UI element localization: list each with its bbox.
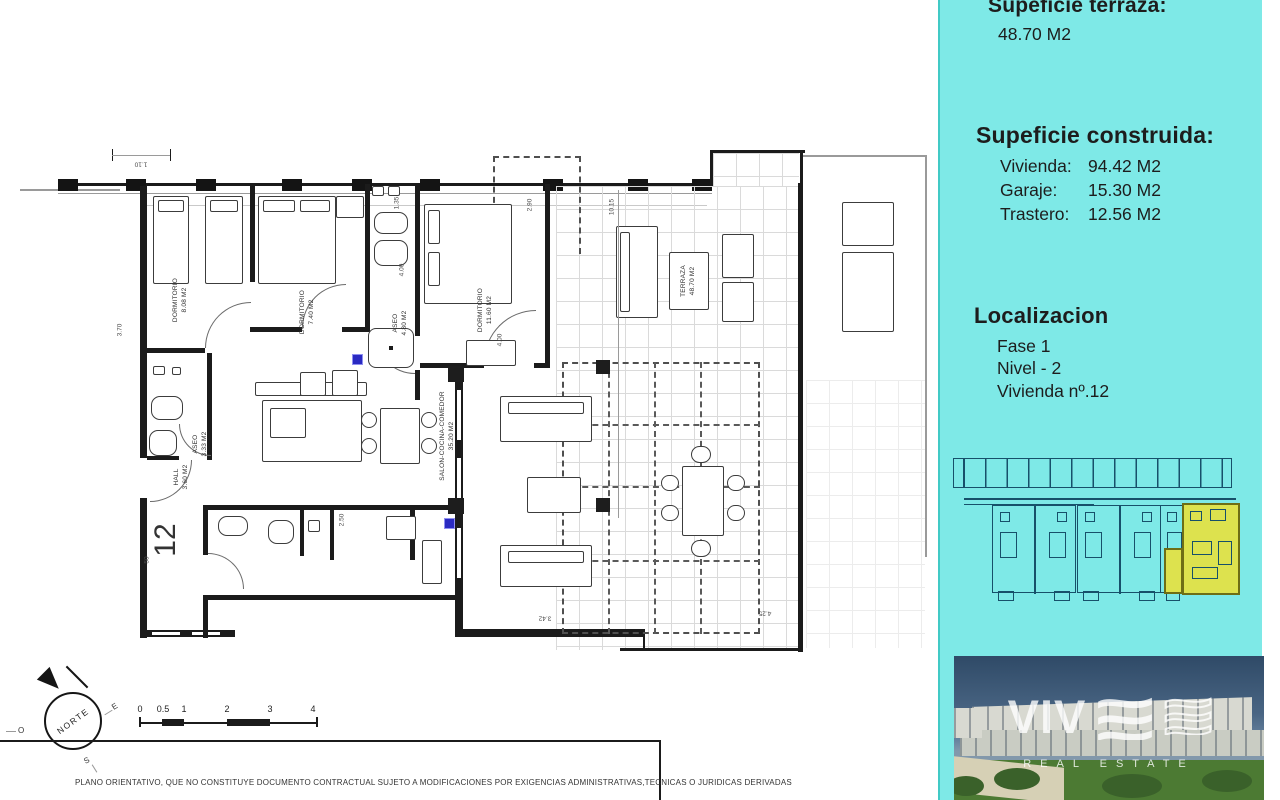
dim-label: 1.35 <box>394 197 401 210</box>
shelf <box>172 367 181 375</box>
minimap-room <box>1134 532 1151 558</box>
minimap-room <box>1192 541 1212 555</box>
terrace-tiles <box>713 153 799 186</box>
room-name: ASEO <box>192 435 201 454</box>
unit-number: 12 <box>149 523 183 556</box>
pillow <box>158 200 184 212</box>
wall <box>798 183 803 652</box>
chair <box>421 438 437 454</box>
kitchen-appliance <box>332 370 358 396</box>
dim-tick <box>170 149 171 161</box>
sofa-back <box>508 402 584 414</box>
minimap-unit-foot <box>998 591 1014 601</box>
floor-plan: 1.10 <box>0 0 938 800</box>
compass-tick <box>92 764 98 772</box>
wall <box>342 327 370 332</box>
washbasin-symbol <box>218 516 248 536</box>
pillar <box>282 179 302 191</box>
scale-tick-label: 3 <box>267 704 272 714</box>
location-item: Vivienda nº.12 <box>997 381 1109 402</box>
pergola-post <box>596 360 610 374</box>
minimap-unit-divider <box>1119 506 1121 594</box>
pillow <box>300 200 330 212</box>
north-arrow-icon <box>37 667 65 695</box>
wall <box>620 648 800 651</box>
pillar <box>196 179 216 191</box>
service-marker <box>444 518 455 529</box>
chair <box>361 438 377 454</box>
room-label-dormitorio2: DORMITORIO 7.40 M2 <box>299 290 317 334</box>
built-row: Garaje:15.30 M2 <box>1000 180 1161 201</box>
wall <box>250 327 302 332</box>
kitchen-appliance <box>386 516 416 540</box>
vive-waves-icon <box>1164 693 1212 735</box>
coffee-table <box>527 477 581 513</box>
photo-bush <box>1202 770 1252 792</box>
built-row: Vivienda:94.42 M2 <box>1000 156 1161 177</box>
door-arc <box>208 553 244 589</box>
room-area: 3.60 M2 <box>182 465 191 490</box>
wall <box>534 363 550 368</box>
dim-label: 3.70 <box>117 324 124 337</box>
room-name: ASEO <box>392 314 401 333</box>
washbasin-symbol <box>149 430 177 456</box>
room-area: 48.70 M2 <box>689 267 698 296</box>
pergola-beam <box>654 362 656 634</box>
toilet-symbol <box>151 396 183 420</box>
north-arrow-shaft <box>66 666 89 689</box>
shelf <box>372 186 384 196</box>
window-slit <box>152 632 180 635</box>
dim-label: 4.00 <box>497 334 504 347</box>
wall <box>330 510 334 560</box>
terrace-surface-value: 48.70 M2 <box>998 24 1071 45</box>
minimap-room <box>1192 567 1218 579</box>
minimap-storage-block <box>953 458 964 488</box>
toilet-symbol <box>268 520 294 544</box>
vive-logo: VIV <box>964 692 1256 740</box>
room-label-dormitorio3: DORMITORIO 11.60 M2 <box>477 288 495 332</box>
chair <box>727 475 745 491</box>
room-label-aseo1: ASEO 4.80 M2 <box>392 311 410 336</box>
neighbor-wall <box>803 155 927 157</box>
chair <box>727 505 745 521</box>
kitchen-sink <box>270 408 306 438</box>
neighbor-tiles <box>806 380 925 648</box>
room-label-aseo2: ASEO 3.33 M2 <box>192 432 210 457</box>
wall <box>300 510 304 556</box>
built-row-value: 15.30 M2 <box>1088 180 1161 200</box>
scale-tick-label: 0 <box>137 704 142 714</box>
neighbor-wall <box>925 155 927 557</box>
built-row-label: Garaje: <box>1000 180 1088 201</box>
chair <box>691 446 711 463</box>
glass-panel <box>457 390 461 440</box>
minimap-room <box>1057 512 1067 522</box>
chair <box>661 505 679 521</box>
built-row-value: 12.56 M2 <box>1088 204 1161 224</box>
scale-tick-label: 0.5 <box>157 704 170 714</box>
minimap-room <box>1049 532 1066 558</box>
page: 1.10 <box>0 0 1280 800</box>
pillar <box>58 179 78 191</box>
site-plan-minimap <box>952 450 1252 635</box>
compass-south-label: S <box>82 755 91 765</box>
room-area: 4.80 M2 <box>401 311 410 336</box>
neighbor-planter <box>842 202 894 246</box>
wall <box>140 186 147 458</box>
location-heading: Localizacion <box>974 303 1108 329</box>
neighbor-planter <box>842 252 894 332</box>
toilet-symbol <box>374 240 408 266</box>
compass-tick <box>6 731 16 732</box>
shower-drain <box>389 346 393 350</box>
wall <box>415 184 420 336</box>
minimap-unit-foot <box>1139 591 1155 601</box>
door-arc <box>205 302 251 348</box>
wall <box>365 184 370 332</box>
service-marker <box>352 354 363 365</box>
scale-bar-tick <box>316 717 318 727</box>
building-photo: VIV REAL ESTATE <box>954 656 1264 800</box>
minimap-unit-foot <box>1054 591 1070 601</box>
armchair <box>722 234 754 278</box>
pergola-post <box>448 366 464 382</box>
location-item: Fase 1 <box>997 336 1051 357</box>
titleblock-line <box>0 740 660 742</box>
minimap-unit <box>1077 505 1161 593</box>
armchair <box>722 282 754 322</box>
vive-e-icon <box>1096 692 1154 740</box>
dim-line <box>112 155 170 156</box>
room-area: 7.40 M2 <box>308 300 317 325</box>
room-name: DORMITORIO <box>299 290 308 334</box>
minimap-garage-cells <box>965 459 1231 487</box>
dim-label: 2.90 <box>527 199 534 212</box>
minimap-room <box>1085 532 1102 558</box>
disclaimer-text: PLANO ORIENTATIVO, QUE NO CONSTITUYE DOC… <box>75 778 792 787</box>
titleblock-line <box>659 740 661 800</box>
wall <box>140 498 147 638</box>
bidet-symbol <box>374 212 408 234</box>
built-surface-heading: Supeficie construida: <box>976 122 1214 149</box>
vive-brand-letters: VIV <box>1008 693 1087 740</box>
chair <box>361 412 377 428</box>
location-item: Nivel - 2 <box>997 358 1061 379</box>
room-label-hall: HALL 3.60 M2 <box>173 465 191 490</box>
pergola-post <box>596 498 610 512</box>
room-label-salon: SALON-COCINA-COMEDOR 35.20 M2 <box>439 391 457 481</box>
minimap-unit <box>992 505 1076 593</box>
built-row-label: Vivienda: <box>1000 156 1088 177</box>
dining-table <box>380 408 420 464</box>
minimap-room <box>1210 509 1226 521</box>
scale-bar-block <box>227 719 270 726</box>
room-name: HALL <box>173 468 182 485</box>
bench <box>466 340 516 366</box>
shelf <box>308 520 320 532</box>
pillow <box>428 252 440 286</box>
dim-label: 3.42 <box>539 615 552 622</box>
wall <box>203 510 208 555</box>
minimap-highlighted-unit <box>1182 503 1240 595</box>
pillow <box>263 200 295 212</box>
glass-panel <box>457 528 461 578</box>
room-area: 8.08 M2 <box>181 288 190 313</box>
dim-label: 10.15 <box>609 199 616 215</box>
minimap-room <box>1000 512 1010 522</box>
minimap-garage-strip <box>964 458 1232 488</box>
wall <box>203 595 208 638</box>
vive-tagline: REAL ESTATE <box>954 758 1264 770</box>
minimap-unit-divider <box>1034 506 1036 594</box>
shelf <box>153 366 165 375</box>
minimap-room <box>1167 512 1177 522</box>
minimap-room <box>1085 512 1095 522</box>
compass-tick <box>104 710 112 716</box>
pergola-post <box>448 498 464 514</box>
scale-tick-label: 4 <box>310 704 315 714</box>
shelf <box>388 186 400 196</box>
scale-tick-label: 1 <box>181 704 186 714</box>
dim-label: 1.10 <box>135 161 148 168</box>
room-name: DORMITORIO <box>477 288 486 332</box>
room-name: DORMITORIO <box>172 278 181 322</box>
counter <box>422 540 442 584</box>
scale-bar-tick <box>139 717 141 727</box>
sofa-back <box>620 232 630 312</box>
outdoor-table <box>682 466 724 536</box>
built-row: Trastero:12.56 M2 <box>1000 204 1161 225</box>
minimap-room <box>1142 512 1152 522</box>
photo-bush <box>994 768 1040 790</box>
photo-bush <box>1102 774 1162 798</box>
built-row-label: Trastero: <box>1000 204 1088 225</box>
chair <box>661 475 679 491</box>
pillow <box>210 200 238 212</box>
info-panel: Supeficie terraza: 48.70 M2 Supeficie co… <box>938 0 1262 800</box>
wall <box>415 370 420 400</box>
closet <box>336 196 364 218</box>
pillow <box>428 210 440 244</box>
chair <box>691 540 711 557</box>
minimap-room <box>1000 532 1017 558</box>
dim-label: 50 <box>144 556 151 563</box>
room-name: SALON-COCINA-COMEDOR <box>439 391 448 481</box>
room-label-dormitorio1: DORMITORIO 8.08 M2 <box>172 278 190 322</box>
room-area: 3.33 M2 <box>201 432 210 457</box>
wall <box>203 595 458 600</box>
compass-west-label: O <box>18 726 24 735</box>
minimap-unit-foot <box>1083 591 1099 601</box>
room-area: 11.60 M2 <box>486 296 495 324</box>
room-label-terraza: TERRAZA 48.70 M2 <box>680 265 698 297</box>
sofa-back <box>508 551 584 563</box>
room-name: TERRAZA <box>680 265 689 297</box>
wall <box>250 184 255 282</box>
minimap-room <box>1218 541 1232 565</box>
dim-line <box>618 190 619 518</box>
scale-tick-label: 2 <box>224 704 229 714</box>
minimap-room <box>1190 511 1202 521</box>
kitchen-appliance <box>300 372 326 396</box>
terrace-surface-heading: Supeficie terraza: <box>988 0 1167 18</box>
dim-label: 4.25 <box>759 610 772 617</box>
pillar <box>420 179 440 191</box>
minimap-highlighted-extension <box>1164 548 1183 594</box>
built-row-value: 94.42 M2 <box>1088 156 1161 176</box>
dim-label: 4.00 <box>399 264 406 277</box>
chair <box>421 412 437 428</box>
scale-bar-block <box>162 719 184 726</box>
dim-label: 2.50 <box>339 514 346 527</box>
wall <box>147 348 205 353</box>
minimap-corridor-line <box>964 498 1236 500</box>
room-area: 35.20 M2 <box>448 422 457 451</box>
